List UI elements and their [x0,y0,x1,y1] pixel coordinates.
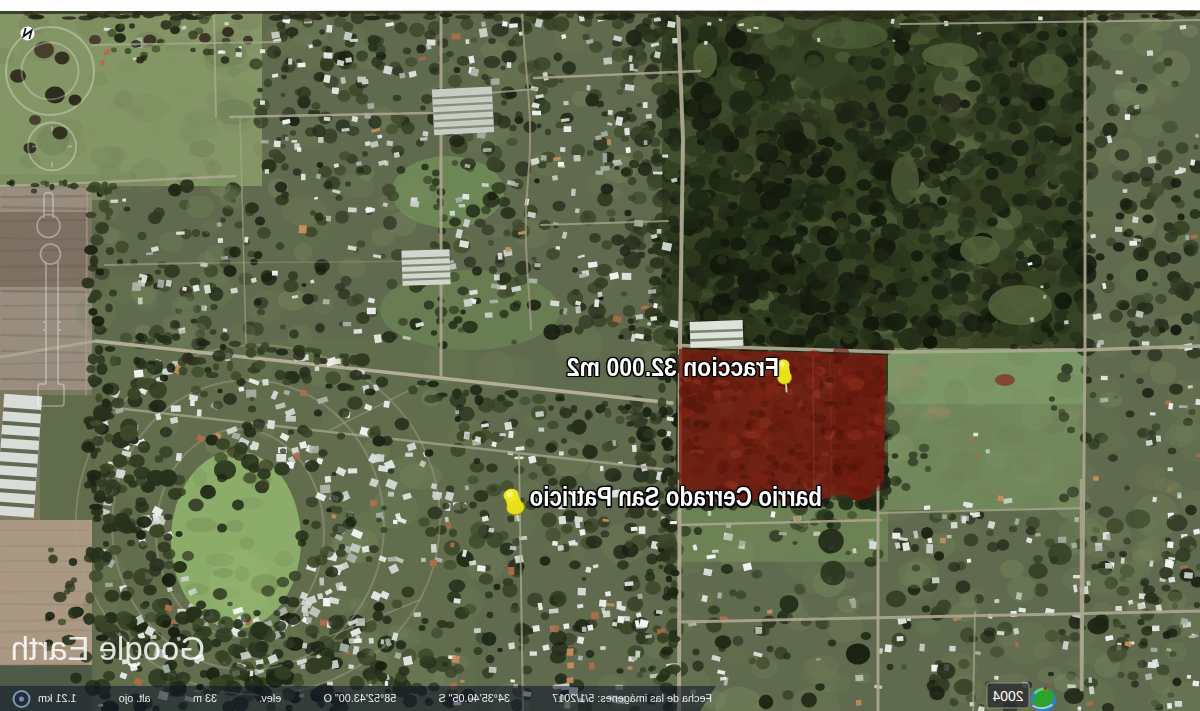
svg-text:2004: 2004 [992,688,1023,704]
